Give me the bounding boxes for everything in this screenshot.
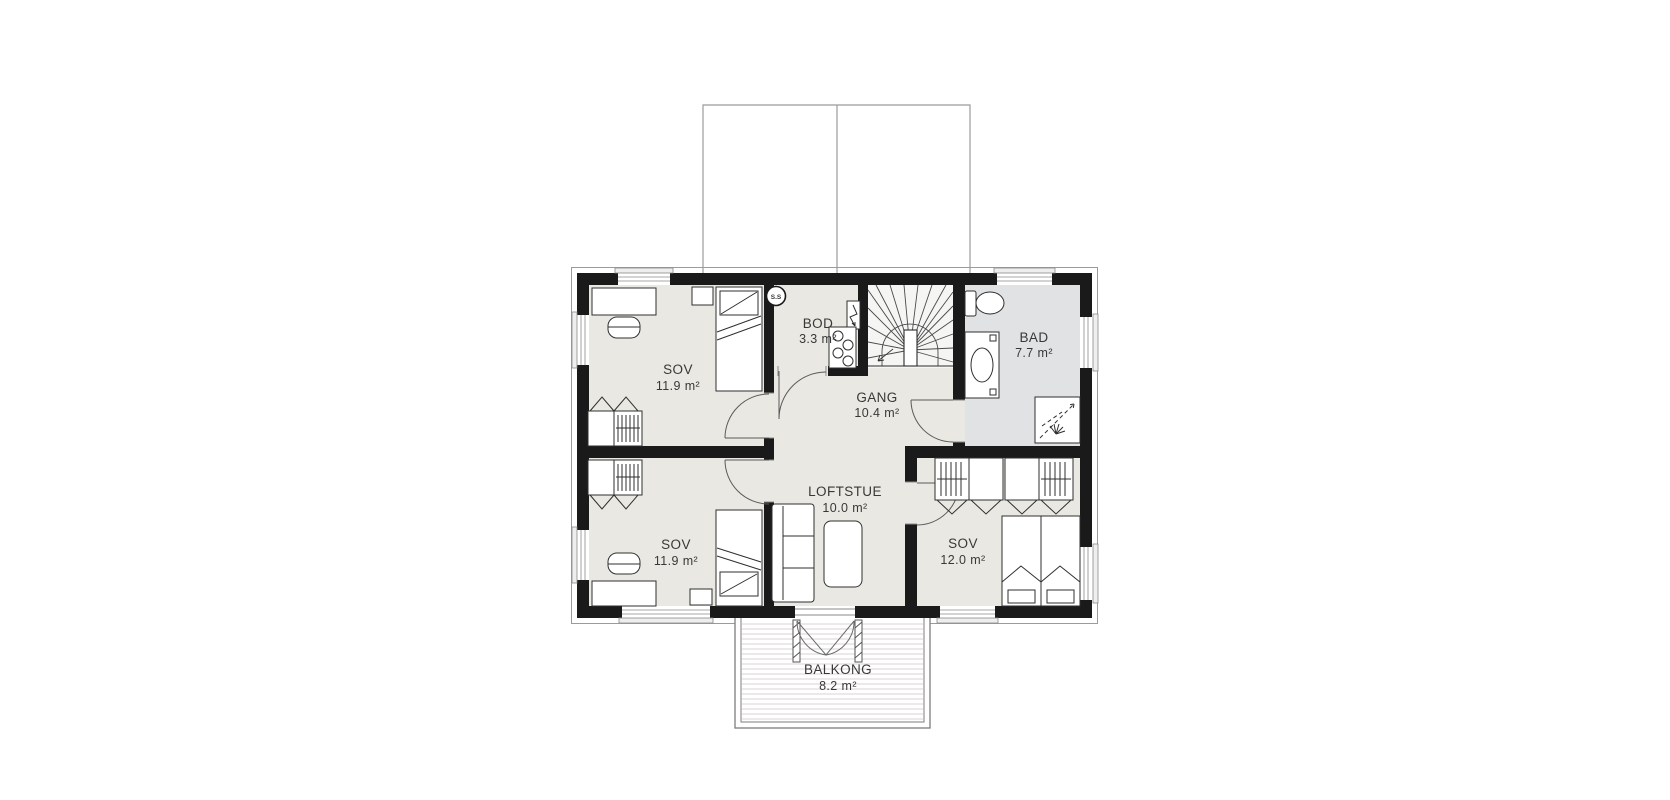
bed-icon: [716, 287, 762, 391]
sofa-icon: [772, 504, 814, 602]
roof-outline: [703, 105, 970, 273]
svg-text:11.9 m²: 11.9 m²: [656, 379, 700, 393]
svg-text:11.9 m²: 11.9 m²: [654, 554, 698, 568]
desk-icon: [592, 288, 656, 315]
electrical-panel-icon: [847, 301, 860, 329]
nightstand-icon: [692, 287, 713, 305]
window-left-upper: [572, 312, 589, 368]
chair-icon: [608, 553, 640, 574]
svg-text:GANG: GANG: [856, 390, 897, 405]
coffee-table-icon: [824, 521, 862, 587]
floorplan-drawing: S.S SOV 11.9 m² BOD 3.3 m² BAD 7.7 m² GA…: [0, 0, 1670, 800]
svg-text:LOFTSTUE: LOFTSTUE: [808, 484, 882, 499]
svg-text:SOV: SOV: [661, 537, 691, 552]
window-top-sov: [615, 268, 673, 285]
nightstand-icon: [690, 589, 712, 605]
smoke-detector-label: S.S: [771, 294, 782, 301]
window-top-bad: [994, 268, 1055, 285]
floorplan-page: S.S SOV 11.9 m² BOD 3.3 m² BAD 7.7 m² GA…: [0, 0, 1670, 800]
svg-text:12.0 m²: 12.0 m²: [940, 553, 985, 567]
svg-text:3.3 m²: 3.3 m²: [799, 332, 837, 346]
svg-text:BALKONG: BALKONG: [804, 662, 872, 677]
svg-text:BAD: BAD: [1020, 330, 1049, 345]
window-bottom-sov: [619, 606, 713, 623]
window-left-lower: [572, 527, 589, 583]
window-bottom-sov-right: [937, 606, 998, 623]
svg-text:BOD: BOD: [803, 316, 833, 331]
svg-text:SOV: SOV: [663, 362, 693, 377]
double-bed-icon: [1002, 516, 1080, 606]
desk-icon: [592, 581, 656, 606]
window-right-sov: [1080, 544, 1098, 603]
toilet-icon: [965, 291, 1004, 316]
chair-icon: [608, 317, 640, 338]
bed-icon: [716, 510, 762, 606]
sink-vanity-icon: [965, 332, 999, 398]
window-right-bad: [1080, 314, 1098, 371]
svg-text:8.2 m²: 8.2 m²: [819, 679, 857, 693]
svg-text:SOV: SOV: [948, 536, 978, 551]
shower-icon: [1035, 397, 1080, 443]
svg-text:10.0 m²: 10.0 m²: [822, 501, 867, 515]
smoke-detector-marker: S.S: [767, 287, 786, 306]
svg-text:7.7 m²: 7.7 m²: [1015, 346, 1053, 360]
svg-text:10.4 m²: 10.4 m²: [854, 406, 899, 420]
